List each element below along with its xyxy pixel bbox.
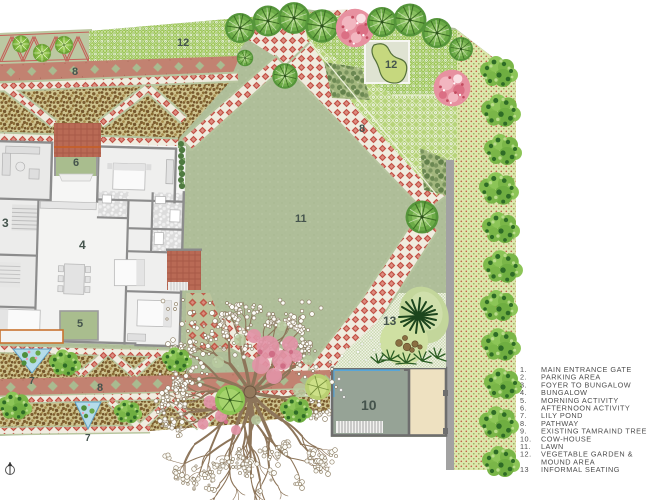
svg-text:12.: 12.	[520, 450, 532, 459]
svg-text:8: 8	[359, 123, 365, 135]
svg-text:3: 3	[2, 216, 9, 230]
svg-text:6: 6	[73, 157, 79, 169]
svg-text:INFORMAL SEATING: INFORMAL SEATING	[541, 465, 620, 474]
svg-text:8: 8	[72, 66, 78, 78]
svg-text:13: 13	[520, 465, 529, 474]
svg-text:12: 12	[385, 59, 397, 71]
svg-text:10: 10	[361, 397, 377, 413]
svg-text:7: 7	[85, 433, 91, 444]
svg-text:5: 5	[77, 318, 83, 330]
svg-text:8: 8	[97, 382, 103, 394]
svg-text:12: 12	[177, 37, 189, 49]
svg-text:13: 13	[383, 314, 397, 328]
svg-text:7: 7	[29, 376, 35, 387]
svg-text:11: 11	[295, 213, 307, 225]
svg-text:4: 4	[79, 238, 86, 252]
